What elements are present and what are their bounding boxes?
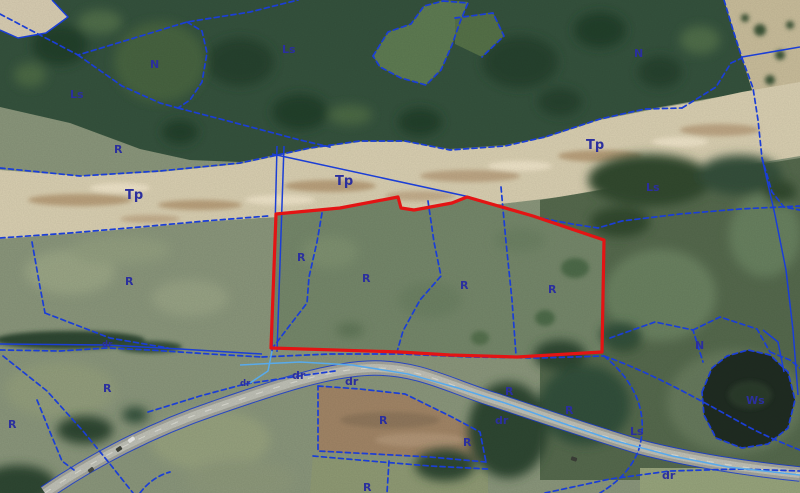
land-use-label-dr: dr <box>662 469 676 482</box>
land-use-label-Ls: Ls <box>646 181 660 194</box>
land-use-label-Ws: Ws <box>746 394 765 407</box>
land-use-label-Tp: Tp <box>335 174 353 189</box>
land-use-label-dr: dr <box>495 414 509 427</box>
land-use-label-Tp: Tp <box>586 138 604 153</box>
land-use-label-R: R <box>8 418 17 431</box>
land-use-label-dr: dr <box>102 340 113 350</box>
land-use-label-R: R <box>297 251 306 264</box>
land-use-label-R: R <box>460 279 469 292</box>
land-use-label-Tp: Tp <box>125 188 143 203</box>
land-use-label-Ls: Ls <box>282 43 296 56</box>
satellite-basemap <box>0 0 800 493</box>
land-use-label-dr: dr <box>345 375 359 388</box>
land-use-label-N: N <box>695 339 704 352</box>
land-use-label-Ls: Ls <box>70 88 84 101</box>
land-use-label-R: R <box>565 404 574 417</box>
photo-grain <box>0 0 800 493</box>
land-use-label-R: R <box>379 414 388 427</box>
land-use-label-dr: dr <box>240 379 251 389</box>
land-use-label-R: R <box>103 382 112 395</box>
land-use-label-R: R <box>362 272 371 285</box>
land-use-label-N: N <box>150 58 159 71</box>
land-use-label-R: R <box>463 436 472 449</box>
land-use-label-Ls: Ls <box>630 425 644 438</box>
land-use-label-R: R <box>125 275 134 288</box>
land-use-label-R: R <box>114 143 123 156</box>
map-canvas[interactable]: LsNRLsNTpTpTpLsRRRRRdrdrdrdrRRRRRRdrRLsd… <box>0 0 800 493</box>
land-use-label-dr: dr <box>292 369 306 382</box>
land-use-label-R: R <box>548 283 557 296</box>
land-use-label-R: R <box>505 385 514 398</box>
land-use-label-R: R <box>363 481 372 493</box>
land-use-label-N: N <box>634 47 643 60</box>
map-viewport[interactable]: LsNRLsNTpTpTpLsRRRRRdrdrdrdrRRRRRRdrRLsd… <box>0 0 800 493</box>
